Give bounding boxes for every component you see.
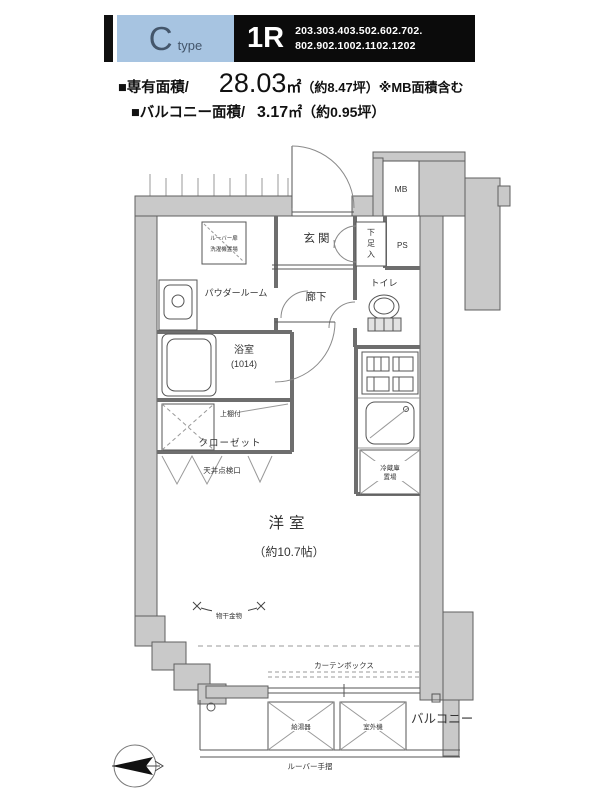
floorplan-drawing: MB — [0, 0, 600, 800]
upper-shelf-leader — [240, 404, 288, 412]
toilet-bowl — [369, 295, 399, 319]
main-room-size-label: （約10.7帖） — [253, 544, 324, 559]
closet: 上棚付 クローゼット 天井点検口 — [162, 404, 288, 484]
wall-balcony-right — [443, 700, 459, 756]
wall-left — [135, 196, 157, 644]
stove-outline — [362, 352, 418, 394]
shoe-cabinet-char2: 足 — [367, 239, 375, 248]
closet-folding-door-2 — [248, 456, 272, 482]
wall-right-notch — [498, 186, 510, 206]
bathroom-size-label: (1014) — [231, 359, 257, 369]
main-room: 洋室 （約10.7帖） 物干金物 カーテンボックス — [193, 514, 420, 697]
bathroom: 浴室 (1014) — [162, 334, 257, 396]
fridge-label-line2: 置場 — [384, 472, 398, 481]
meter-box: MB — [383, 161, 419, 216]
ceiling-hatch-label: 天井点検口 — [203, 465, 241, 475]
wall-window-left — [206, 686, 268, 698]
balcony-label: バルコニー — [411, 712, 473, 726]
wall-right — [420, 216, 443, 700]
shoe-cabinet-door-arc-bottom — [334, 240, 356, 262]
water-heater-label: 給湯器 — [291, 722, 311, 731]
ac-unit-label: 室外機 — [363, 722, 383, 731]
powder-room: パウダールーム — [159, 280, 267, 330]
interior-door-arcs — [275, 291, 355, 382]
entrance-door — [292, 146, 354, 216]
kitchen-sink — [366, 402, 414, 444]
laundry-hardware-label: 物干金物 — [216, 611, 243, 620]
entrance-door-swing-arc — [292, 146, 354, 208]
washer-label-line2: 洗濯機置場 — [210, 245, 238, 253]
main-room-label: 洋室 — [268, 514, 309, 532]
wall-top-left — [135, 196, 292, 216]
fridge-label-line1: 冷蔵庫 — [380, 463, 400, 472]
bathroom-label: 浴室 — [234, 343, 254, 356]
meter-box-label: MB — [395, 184, 408, 194]
shoe-cabinet: 下 足 入 — [334, 222, 386, 266]
wall-top-right-corner — [419, 161, 465, 216]
powder-room-door-arc — [281, 291, 308, 318]
closet-label: クローゼット — [198, 437, 261, 449]
kitchen: 冷蔵庫 置場 — [358, 352, 420, 494]
hallway-label: 廊下 — [306, 290, 327, 303]
wall-top-right-of-door — [352, 196, 375, 216]
shoe-cabinet-char1: 下 — [367, 228, 375, 237]
adjacent-structure-hatch — [150, 174, 288, 196]
bathtub-outer — [162, 334, 216, 396]
washer-space: ルーバー扉 洗濯機置場 — [202, 222, 246, 264]
shoe-cabinet-char3: 入 — [367, 250, 375, 259]
genkan-label: 玄関 — [304, 231, 333, 245]
wall-mb-top — [373, 152, 465, 161]
pipe-space-label: PS — [397, 241, 408, 250]
wall-mb-left — [373, 158, 383, 216]
upper-shelf-label: 上棚付 — [220, 409, 241, 418]
compass — [112, 745, 163, 787]
washer-label-line1: ルーバー扉 — [210, 234, 238, 242]
balcony: 給湯器 室外機 バルコニー ルーバー手摺 — [200, 694, 473, 771]
floorplan-page: C type 1R 203.303.403.502.602.702. 802.9… — [0, 0, 600, 800]
handrail-label: ルーバー手摺 — [288, 761, 333, 771]
toilet-room: トイレ — [368, 278, 401, 331]
toilet-door-arc — [329, 302, 355, 328]
shoe-cabinet-door-arc-top — [334, 226, 356, 248]
powder-room-label: パウダールーム — [205, 287, 268, 298]
wall-right-outdent — [465, 178, 500, 310]
toilet-label: トイレ — [370, 278, 397, 288]
curtain-box-label: カーテンボックス — [314, 661, 374, 670]
wall-bottom-right-block — [443, 612, 473, 700]
